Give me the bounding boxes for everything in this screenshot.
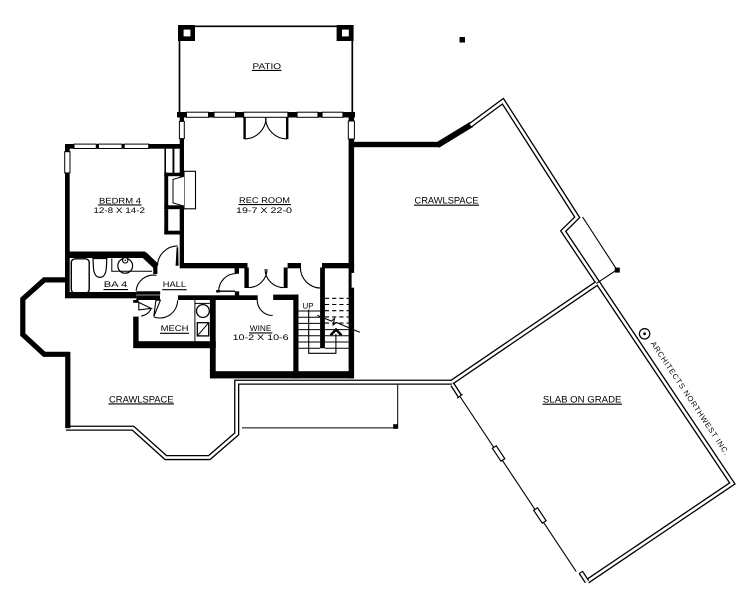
svg-text:BEDRM 4: BEDRM 4 — [99, 196, 142, 205]
svg-text:SLAB ON GRADE: SLAB ON GRADE — [543, 394, 622, 405]
svg-text:HALL: HALL — [163, 280, 187, 289]
svg-text:REC ROOM: REC ROOM — [239, 196, 290, 205]
svg-text:12-8 X 14-2: 12-8 X 14-2 — [93, 206, 145, 215]
svg-text:CRAWLSPACE: CRAWLSPACE — [415, 195, 479, 206]
svg-text:ARCHITECTS NORTHWEST INC.: ARCHITECTS NORTHWEST INC. — [649, 340, 732, 458]
svg-text:MECH: MECH — [161, 324, 189, 333]
svg-text:PATIO: PATIO — [253, 62, 282, 71]
svg-text:WINE: WINE — [250, 324, 272, 333]
svg-text:10-2 X 10-6: 10-2 X 10-6 — [233, 333, 290, 342]
svg-text:UP: UP — [303, 302, 314, 311]
svg-text:19-7 X 22-0: 19-7 X 22-0 — [236, 206, 293, 215]
svg-text:BA 4: BA 4 — [104, 280, 128, 289]
svg-text:CRAWLSPACE: CRAWLSPACE — [109, 393, 174, 404]
